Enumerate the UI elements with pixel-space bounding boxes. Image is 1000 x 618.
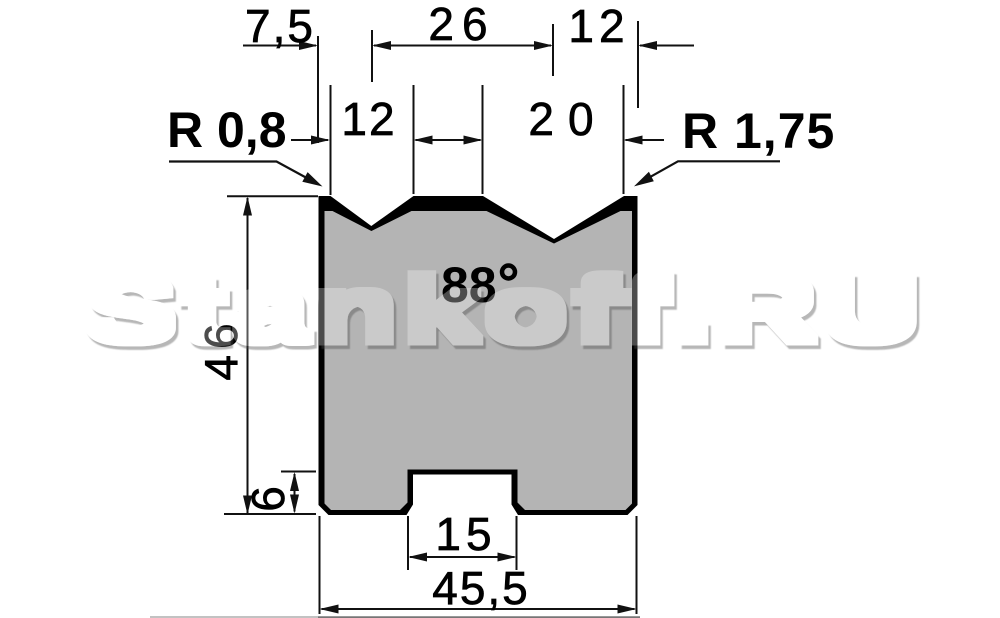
svg-text:R 1,75: R 1,75 bbox=[682, 103, 835, 159]
svg-text:45,5: 45,5 bbox=[432, 562, 530, 614]
svg-text:20: 20 bbox=[528, 93, 607, 145]
svg-text:7,5: 7,5 bbox=[245, 0, 315, 52]
svg-text:6: 6 bbox=[242, 484, 294, 512]
svg-text:12: 12 bbox=[568, 0, 629, 52]
svg-text:15: 15 bbox=[435, 508, 496, 560]
svg-text:26: 26 bbox=[428, 0, 495, 50]
svg-text:12: 12 bbox=[341, 93, 396, 145]
svg-text:Stankoff.RU: Stankoff.RU bbox=[86, 261, 926, 361]
svg-text:R 0,8: R 0,8 bbox=[167, 102, 287, 158]
